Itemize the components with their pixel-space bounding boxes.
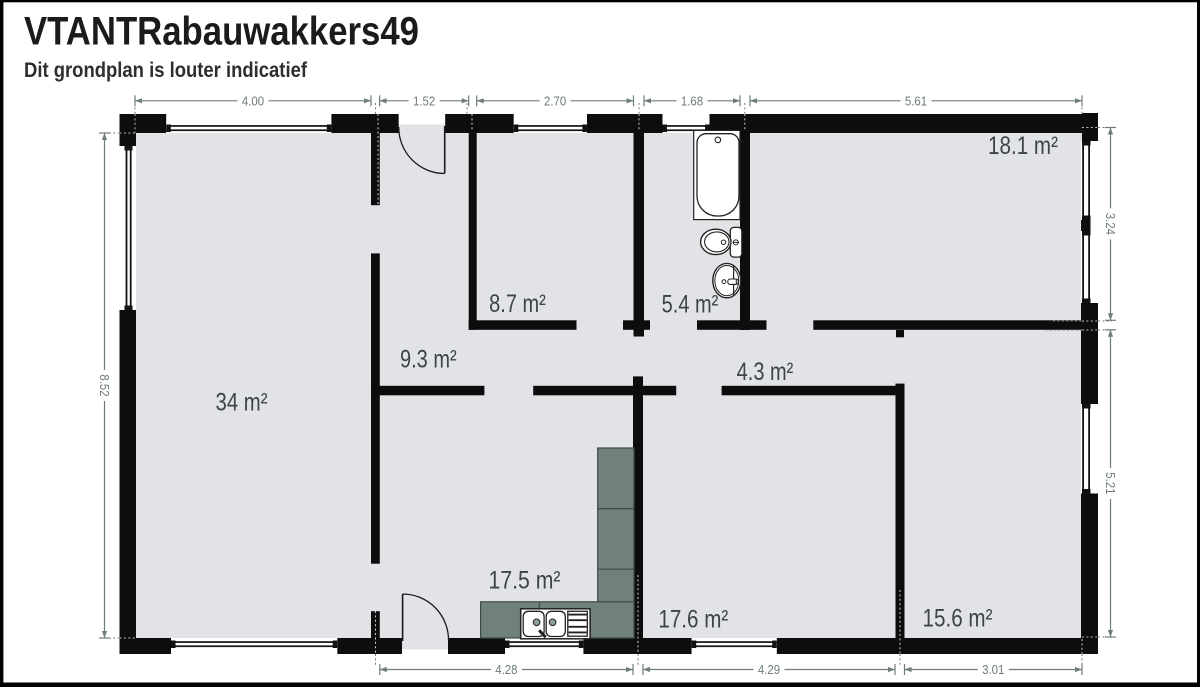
svg-text:3.24: 3.24 — [1103, 213, 1118, 235]
svg-text:34 m²: 34 m² — [216, 387, 268, 416]
svg-text:4.29: 4.29 — [758, 662, 780, 677]
svg-text:9.3 m²: 9.3 m² — [400, 345, 457, 373]
svg-text:4.00: 4.00 — [242, 94, 264, 109]
svg-text:8.52: 8.52 — [97, 374, 112, 396]
svg-text:5.61: 5.61 — [905, 94, 927, 109]
svg-text:5.21: 5.21 — [1103, 472, 1118, 494]
svg-text:8.7 m²: 8.7 m² — [489, 290, 546, 318]
svg-text:5.4 m²: 5.4 m² — [662, 291, 719, 319]
svg-text:18.1 m²: 18.1 m² — [988, 131, 1058, 159]
svg-text:15.6 m²: 15.6 m² — [923, 604, 993, 632]
svg-text:17.5 m²: 17.5 m² — [489, 566, 561, 594]
svg-text:3.01: 3.01 — [982, 662, 1004, 677]
svg-text:VTANTRabauwakkers49: VTANTRabauwakkers49 — [24, 10, 419, 54]
svg-text:Dit grondplan is louter indica: Dit grondplan is louter indicatief — [24, 58, 308, 82]
svg-text:17.6 m²: 17.6 m² — [658, 604, 728, 632]
svg-text:1.52: 1.52 — [413, 94, 435, 109]
svg-text:4.28: 4.28 — [495, 662, 517, 677]
svg-text:2.70: 2.70 — [544, 94, 566, 109]
svg-text:1.68: 1.68 — [681, 94, 703, 109]
svg-text:4.3 m²: 4.3 m² — [737, 358, 794, 386]
